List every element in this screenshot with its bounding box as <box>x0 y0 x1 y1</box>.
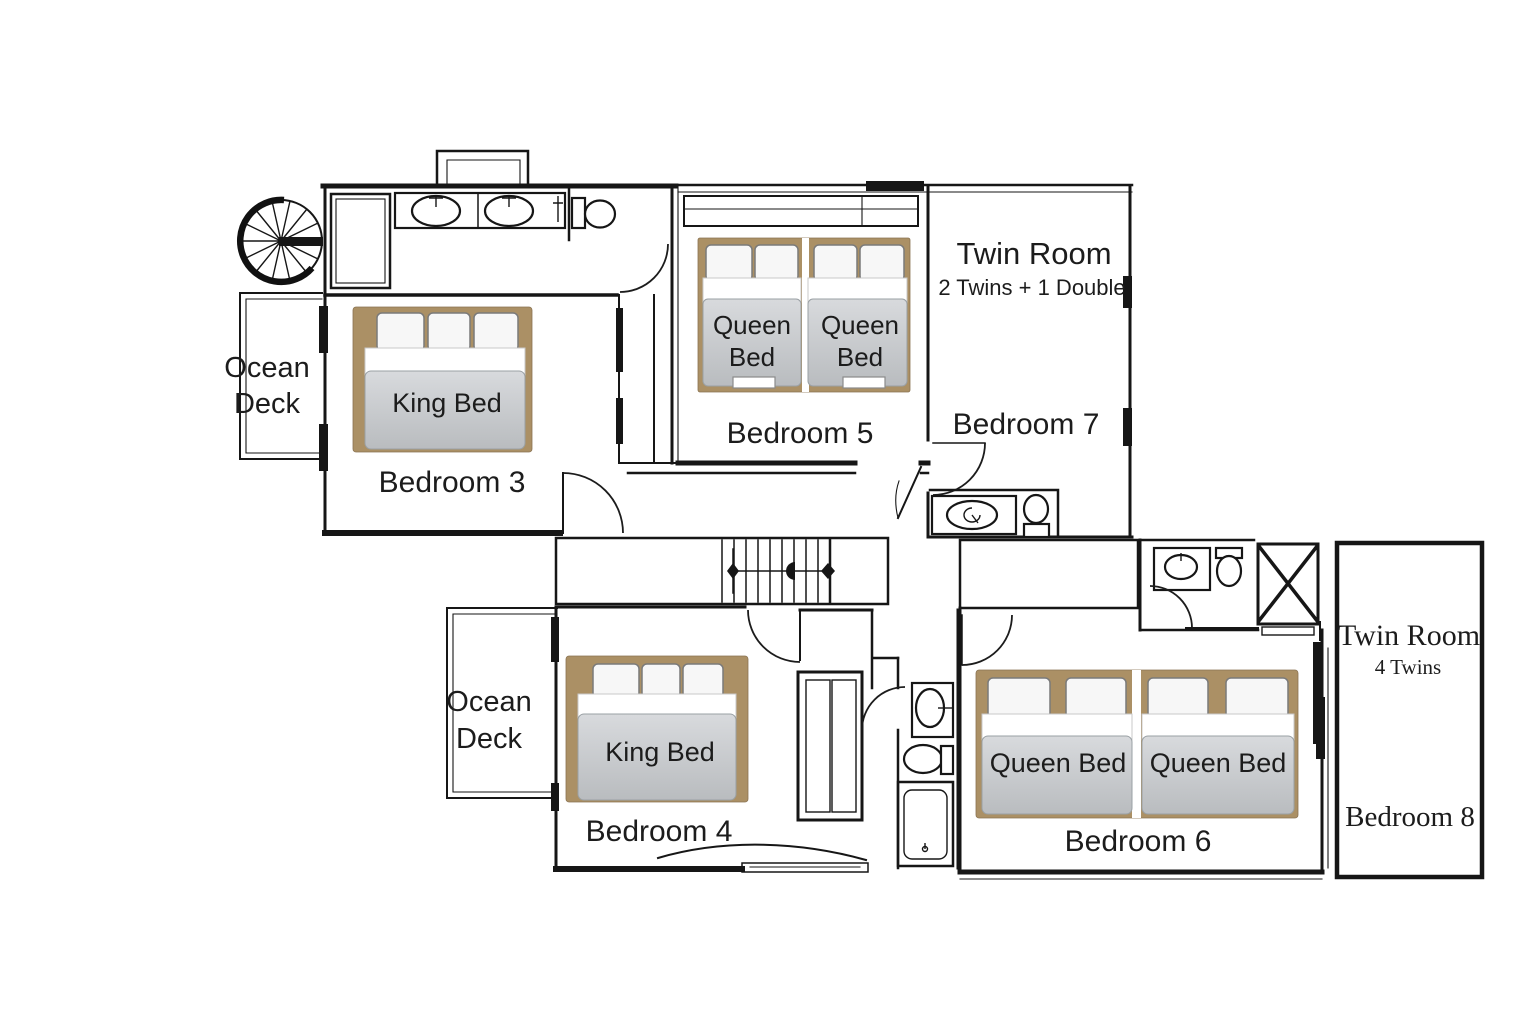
door-arc <box>563 473 623 533</box>
door-arc <box>620 244 668 292</box>
ocean-deck-upper-label-line2: Deck <box>234 388 301 420</box>
bed-label: King Bed <box>605 737 715 767</box>
shower-icon <box>898 782 953 866</box>
bed-label: Queen Bed <box>990 748 1127 778</box>
window-bedroom4-upper <box>551 617 559 662</box>
bathroom-middle <box>862 610 958 868</box>
room-label-bedroom7: Bedroom 7 <box>953 408 1100 441</box>
window-bedroom3-upper <box>319 306 328 353</box>
room-type-detail-bedroom7: 2 Twins + 1 Double <box>938 275 1125 300</box>
window-bedroom4-lower <box>551 783 559 811</box>
window-bedroom3-lower <box>319 424 328 471</box>
ocean-deck-lower-label-line1: Ocean <box>446 686 531 718</box>
room-label-bedroom3: Bedroom 3 <box>379 466 526 499</box>
door-arc <box>862 687 905 730</box>
room-label-bedroom4: Bedroom 4 <box>586 815 733 848</box>
toilet-icon <box>904 745 942 773</box>
corridor <box>960 540 1138 608</box>
closet-bedroom3 <box>331 194 390 288</box>
spiral-staircase-icon <box>240 200 323 282</box>
ocean-deck-upper-label-line1: Ocean <box>224 352 309 384</box>
bed-label: Bed <box>837 342 883 372</box>
bed-king-bedroom3: King Bed <box>353 307 532 452</box>
toilet-icon <box>1024 495 1048 523</box>
bed-label: Queen <box>821 310 899 340</box>
ocean-deck-upper: Ocean Deck <box>224 293 322 459</box>
bed-label: Bed <box>729 342 775 372</box>
window-top <box>866 181 924 191</box>
toilet-icon <box>572 198 585 228</box>
room-label-bedroom6: Bedroom 6 <box>1065 825 1212 858</box>
beds-queen-bedroom5: Queen Bed Queen Bed <box>698 238 910 392</box>
bathroom-bedroom3 <box>395 193 668 292</box>
bed-king-bedroom4: King Bed <box>566 656 748 802</box>
bathroom-upper-right <box>1140 540 1258 630</box>
bed-label: Queen <box>713 310 791 340</box>
room-type-detail-bedroom8: 4 Twins <box>1375 655 1441 679</box>
room-label-bedroom5: Bedroom 5 <box>727 417 874 450</box>
floor-plan: Ocean Deck <box>0 0 1536 1024</box>
beds-queen-bedroom6: Queen Bed Queen Bed <box>976 670 1298 818</box>
door-arc <box>1150 586 1192 628</box>
room-type-bedroom8: Twin Room <box>1338 619 1480 652</box>
bedroom8: Twin Room 4 Twins Bedroom 8 <box>1313 543 1482 877</box>
ocean-deck-lower: Ocean Deck <box>446 608 557 798</box>
door-arc <box>962 615 1012 665</box>
elevator-shaft-icon <box>1258 544 1318 635</box>
ocean-deck-lower-label-line2: Deck <box>456 723 523 755</box>
door-leaf <box>898 467 921 518</box>
door-arc <box>933 443 985 495</box>
door-arc <box>748 610 800 662</box>
bed-label: King Bed <box>392 388 502 418</box>
wardrobe-bedroom5 <box>684 196 918 226</box>
floor-plan-page: Ocean Deck <box>0 0 1536 1024</box>
window-bedroom7-lower <box>1123 408 1132 446</box>
room-type-bedroom7: Twin Room <box>956 236 1111 271</box>
room-label-bedroom8: Bedroom 8 <box>1345 801 1475 833</box>
bed-label: Queen Bed <box>1150 748 1287 778</box>
window-bedroom8-side <box>1313 642 1322 744</box>
stair-direction-arrow <box>727 549 835 593</box>
